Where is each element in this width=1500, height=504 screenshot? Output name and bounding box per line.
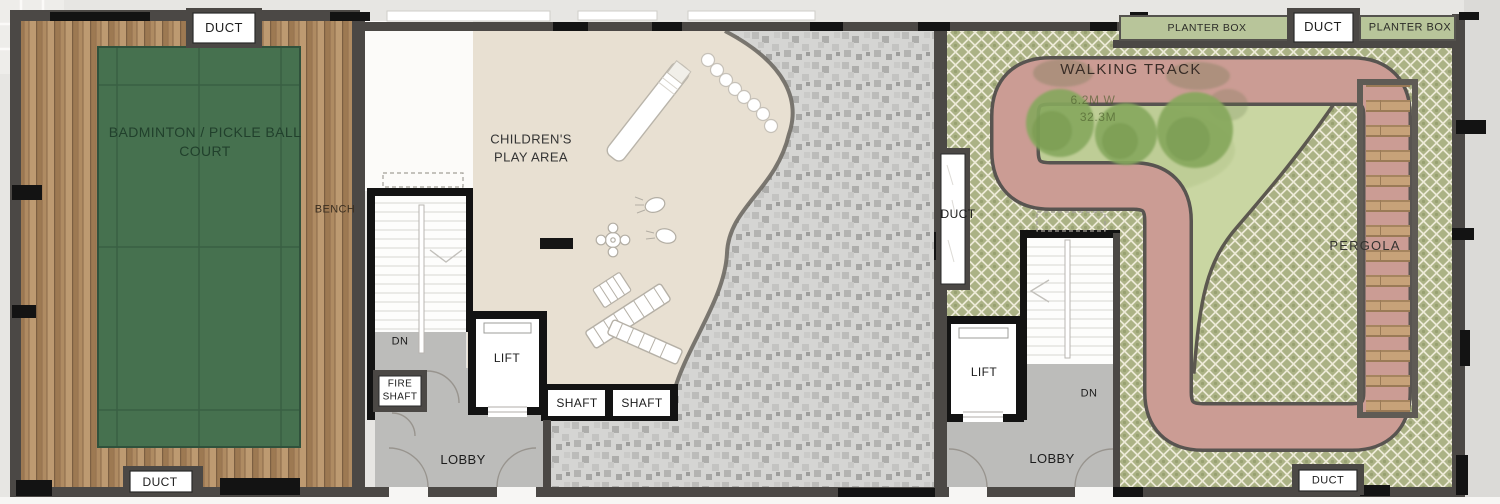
badminton-court-label-line1: BADMINTON / PICKLE BALL [109,123,302,142]
track-width-dim: 6.2M W [1071,92,1116,108]
shaft-1-label: SHAFT [556,395,597,411]
fire-shaft-label-line2: SHAFT [383,391,418,404]
duct-top-left-label: DUCT [205,19,243,37]
duct-mid-label: DUCT [941,206,976,222]
play-bench-black [540,238,573,249]
dn-right-label: DN [1081,387,1098,402]
bench-label: BENCH [315,203,356,218]
badminton-court-label: BADMINTON / PICKLE BALL COURT [109,123,302,161]
shaft-2-label: SHAFT [621,395,662,411]
exterior-right-band [1464,0,1500,504]
exterior-bottom-strip [0,497,1500,504]
children-play-area-label: CHILDREN'S PLAY AREA [490,130,572,165]
exterior-ledges [387,11,815,21]
walking-track-label: WALKING TRACK [1060,60,1202,80]
duct-top-right-label: DUCT [1304,18,1342,36]
lobby-left-label: LOBBY [440,451,485,469]
fire-shaft-label: FIRE SHAFT [383,379,418,404]
lift-left-label: LIFT [494,350,520,366]
badminton-court [98,47,300,447]
upper-shaft-void [365,21,473,191]
badminton-court-label-line2: COURT [109,142,302,161]
planter-box-right-label: PLANTER BOX [1369,21,1452,36]
fire-shaft-label-line1: FIRE [383,379,418,392]
track-length-dim: 32.3M [1080,109,1116,125]
stair-rail-right [1065,240,1070,358]
dn-left-label: DN [392,335,409,350]
lift-right-label: LIFT [971,364,997,380]
duct-bottom-right-label: DUCT [1312,474,1344,489]
children-play-area-label-line1: CHILDREN'S [490,130,572,148]
planter-box-left-label: PLANTER BOX [1167,21,1246,35]
floor-plan: DUCT BADMINTON / PICKLE BALL COURT BENCH… [0,0,1500,504]
floor-plan-drawing [0,0,1500,504]
pergola-label: PERGOLA [1329,237,1400,255]
children-play-area-label-line2: PLAY AREA [490,148,572,166]
stair-rail-left [419,205,424,353]
lobby-right-label: LOBBY [1029,450,1074,468]
duct-bottom-left-label: DUCT [143,474,178,490]
